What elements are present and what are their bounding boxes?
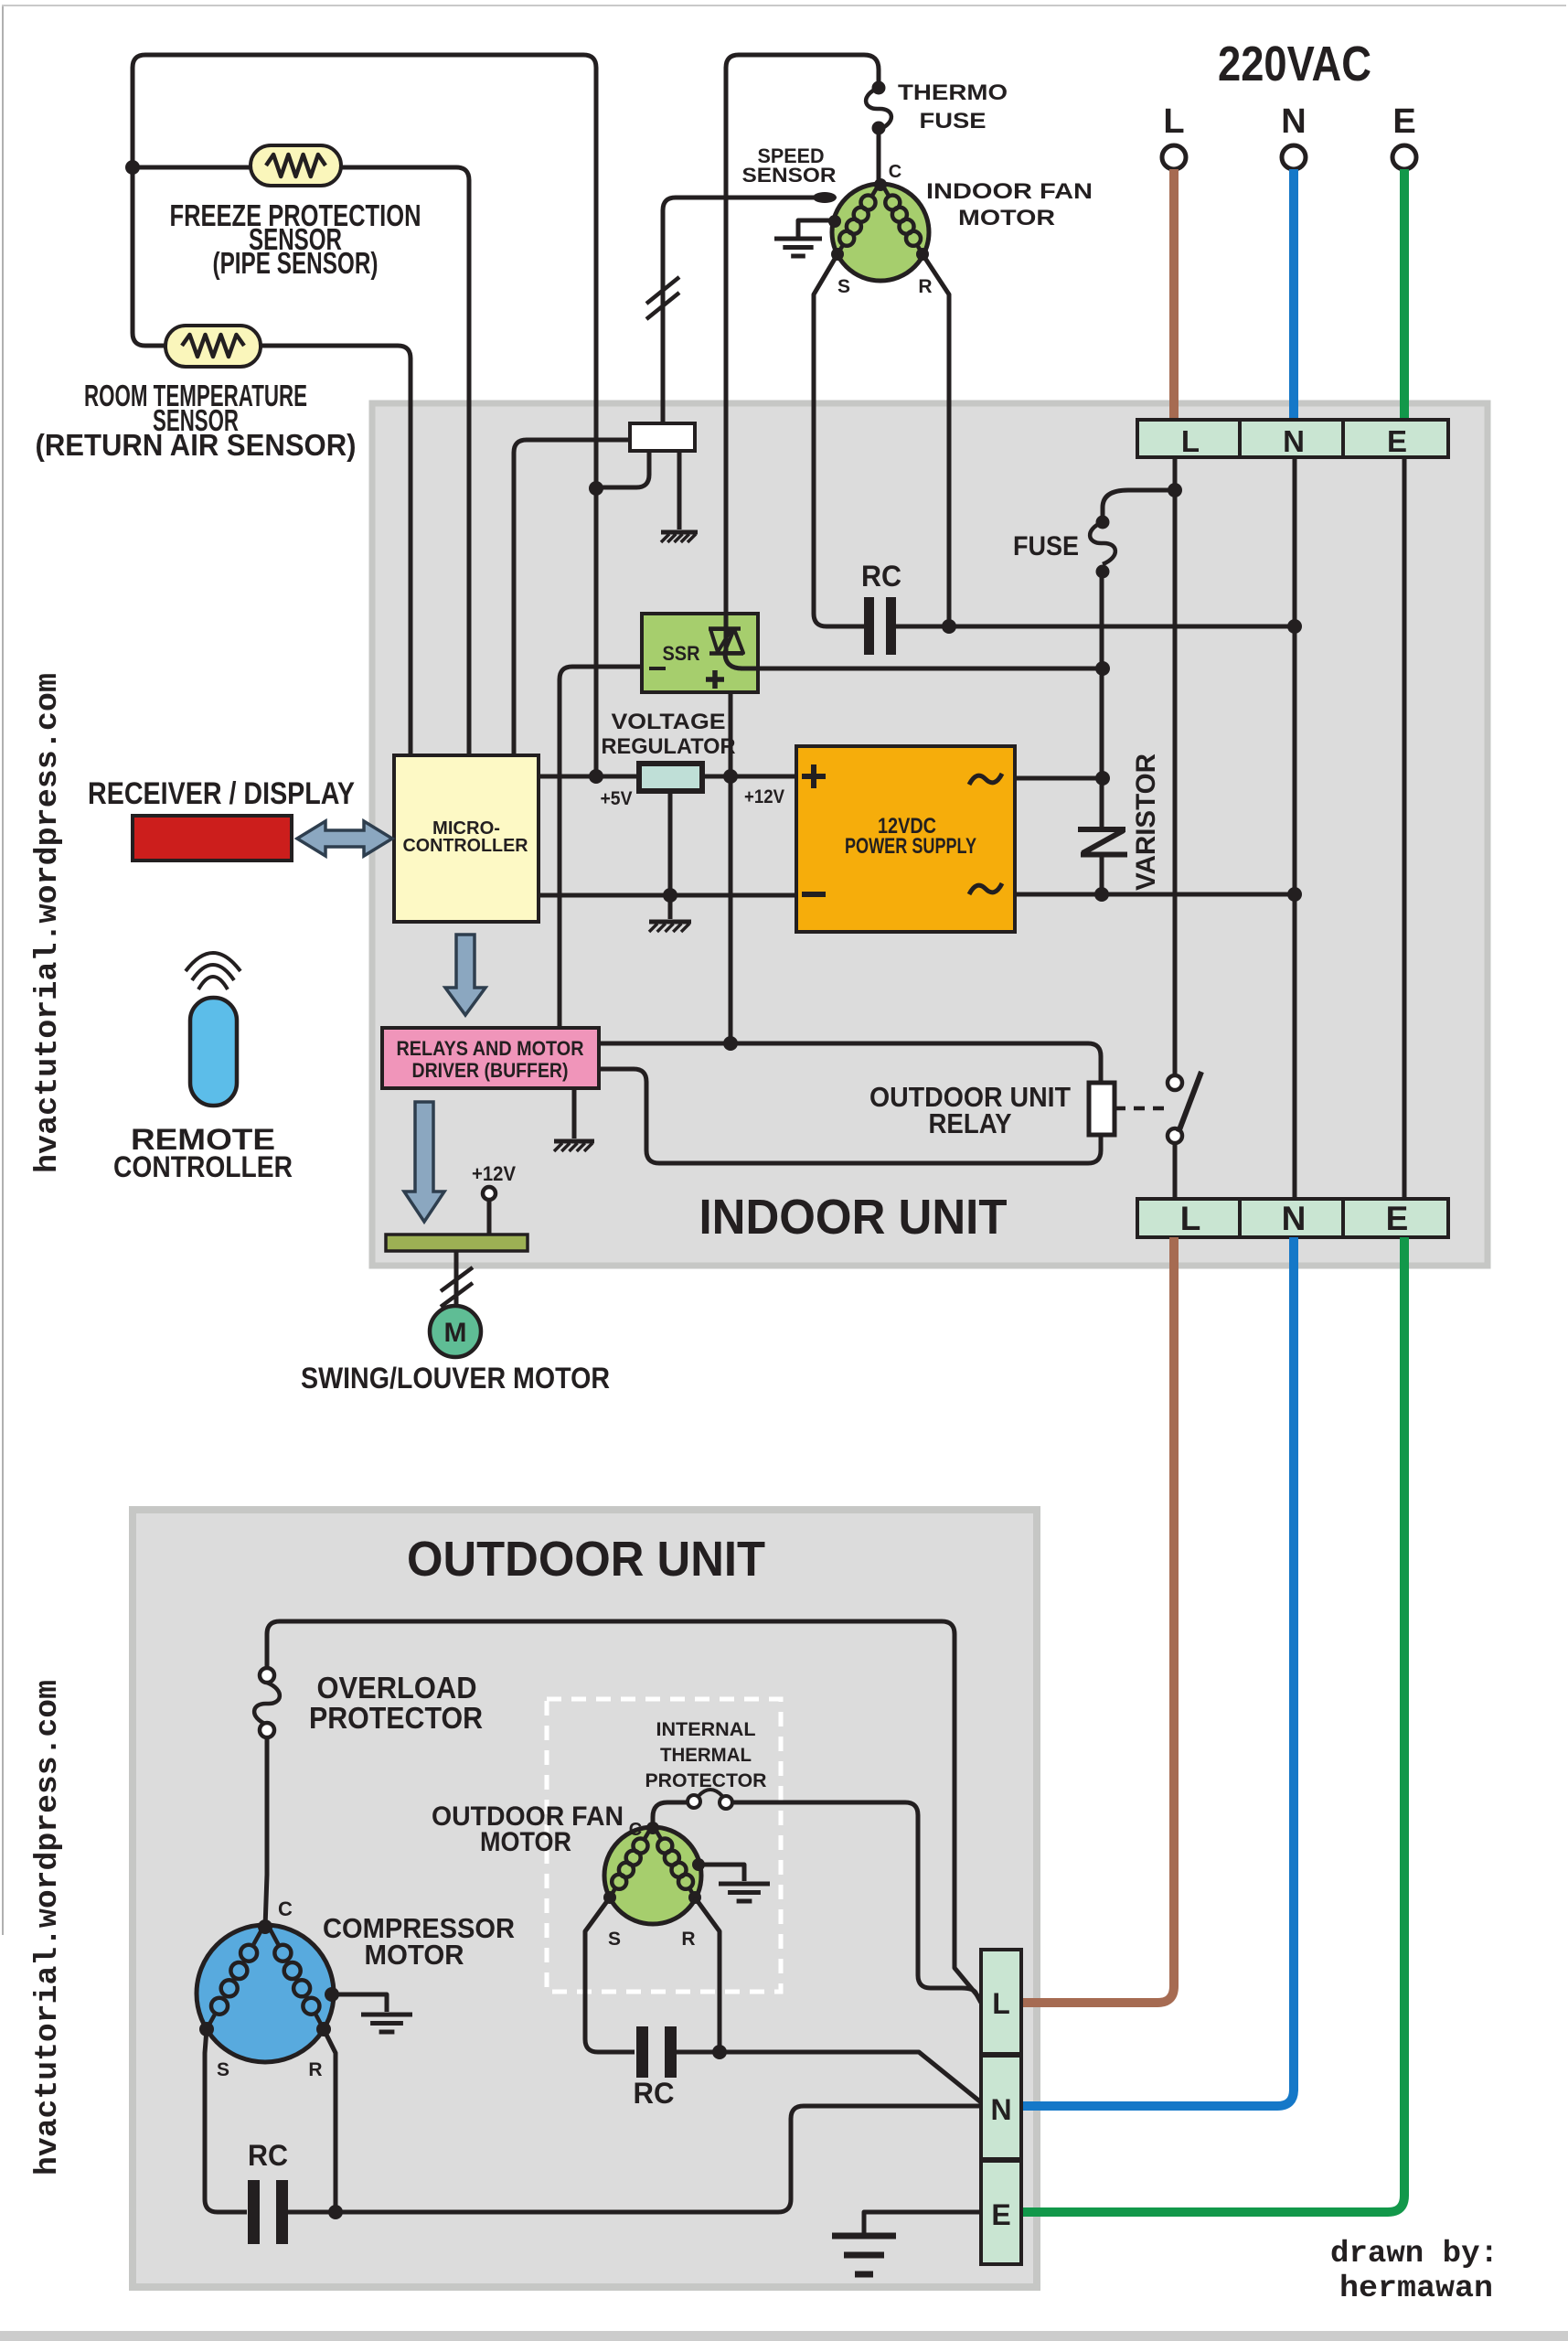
- svg-text:RELAY: RELAY: [929, 1107, 1012, 1139]
- svg-text:DRIVER (BUFFER): DRIVER (BUFFER): [412, 1059, 569, 1082]
- svg-text:L: L: [1180, 1200, 1201, 1237]
- svg-text:SWING/LOUVER MOTOR: SWING/LOUVER MOTOR: [301, 1362, 610, 1395]
- svg-text:(RETURN AIR SENSOR): (RETURN AIR SENSOR): [36, 428, 357, 462]
- svg-text:+12V: +12V: [744, 786, 784, 807]
- svg-text:RELAYS AND MOTOR: RELAYS AND MOTOR: [397, 1037, 584, 1060]
- svg-text:R: R: [918, 276, 932, 297]
- svg-text:VOLTAGE: VOLTAGE: [612, 710, 726, 734]
- svg-text:INTERNAL: INTERNAL: [656, 1719, 756, 1740]
- svg-text:INDOOR UNIT: INDOOR UNIT: [699, 1190, 1008, 1245]
- svg-text:L: L: [1181, 424, 1200, 458]
- svg-text:FUSE: FUSE: [920, 109, 987, 134]
- svg-text:drawn by:: drawn by:: [1330, 2237, 1499, 2271]
- svg-text:CONTROLLER: CONTROLLER: [403, 836, 529, 856]
- svg-text:M: M: [444, 1318, 467, 1348]
- svg-text:MOTOR: MOTOR: [958, 206, 1055, 230]
- svg-text:S: S: [217, 2059, 229, 2080]
- svg-text:E: E: [1386, 1200, 1409, 1237]
- svg-text:POWER SUPPLY: POWER SUPPLY: [845, 834, 976, 859]
- svg-text:220VAC: 220VAC: [1218, 37, 1371, 91]
- svg-text:C: C: [278, 1897, 293, 1920]
- svg-text:S: S: [608, 1929, 621, 1950]
- svg-text:L: L: [1163, 102, 1184, 141]
- svg-text:+12V: +12V: [472, 1162, 516, 1185]
- svg-text:N: N: [1281, 102, 1306, 141]
- svg-text:RC: RC: [248, 2139, 288, 2172]
- svg-text:THERMAL: THERMAL: [660, 1745, 752, 1766]
- svg-text:N: N: [990, 2093, 1011, 2126]
- svg-text:+5V: +5V: [601, 788, 633, 809]
- svg-text:PROTECTOR: PROTECTOR: [309, 1701, 483, 1735]
- svg-text:PROTECTOR: PROTECTOR: [645, 1770, 767, 1791]
- svg-text:E: E: [991, 2198, 1010, 2231]
- svg-text:OUTDOOR UNIT: OUTDOOR UNIT: [407, 1532, 765, 1587]
- svg-text:C: C: [629, 1820, 642, 1840]
- svg-text:N: N: [1283, 424, 1305, 458]
- svg-text:VARISTOR: VARISTOR: [1131, 754, 1161, 891]
- svg-text:N: N: [1282, 1200, 1307, 1237]
- svg-text:REGULATOR: REGULATOR: [602, 734, 736, 759]
- svg-text:C: C: [889, 162, 901, 182]
- svg-text:E: E: [1392, 102, 1415, 141]
- svg-text:OVERLOAD: OVERLOAD: [317, 1671, 477, 1705]
- svg-text:RC: RC: [861, 560, 901, 593]
- svg-text:FUSE: FUSE: [1013, 531, 1079, 561]
- svg-text:MOTOR: MOTOR: [480, 1827, 571, 1857]
- svg-text:RECEIVER / DISPLAY: RECEIVER / DISPLAY: [88, 776, 355, 811]
- svg-text:E: E: [1387, 424, 1407, 458]
- svg-text:hvactutorial.wordpress.com: hvactutorial.wordpress.com: [31, 1680, 66, 2175]
- svg-text:S: S: [837, 276, 850, 297]
- svg-text:hvactutorial.wordpress.com: hvactutorial.wordpress.com: [31, 673, 66, 1173]
- svg-text:THERMO: THERMO: [898, 80, 1008, 105]
- svg-text:(PIPE SENSOR): (PIPE SENSOR): [213, 246, 379, 280]
- svg-text:SSR: SSR: [663, 642, 700, 665]
- svg-text:INDOOR FAN: INDOOR FAN: [926, 179, 1093, 204]
- svg-text:RC: RC: [634, 2077, 675, 2110]
- svg-text:MOTOR: MOTOR: [365, 1939, 464, 1971]
- svg-text:hermawan: hermawan: [1339, 2272, 1493, 2305]
- svg-text:R: R: [681, 1929, 695, 1950]
- svg-text:CONTROLLER: CONTROLLER: [113, 1150, 293, 1183]
- svg-text:R: R: [308, 2059, 322, 2080]
- svg-text:L: L: [992, 1987, 1010, 2020]
- svg-text:SENSOR: SENSOR: [742, 164, 837, 187]
